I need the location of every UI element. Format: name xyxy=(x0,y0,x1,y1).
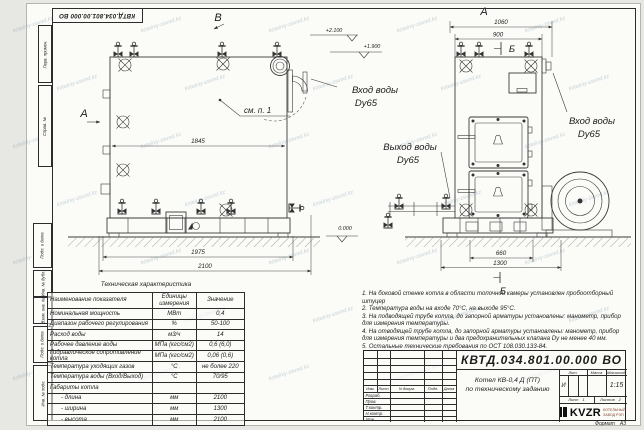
top-stamp: КВТД.034.801.00.000 ВО xyxy=(52,8,143,23)
note-5: 5. Остальные технические требования по О… xyxy=(362,343,630,351)
table-row: Диапазон рабочего регулирования%50-100 xyxy=(48,319,244,330)
lit-value: И xyxy=(559,375,568,396)
mass-header: Масса xyxy=(587,369,606,375)
logo-text: KVZR xyxy=(570,407,601,419)
col-data: Дата xyxy=(442,385,456,392)
table-row: Температура воды (Вход/Выход)°С70/95 xyxy=(48,372,244,383)
table-row: - длинамм2100 xyxy=(48,393,244,404)
sheets-cell: Листов2 xyxy=(594,396,627,403)
table-row: Гидравлическое сопротивление котлаМПа (к… xyxy=(48,350,244,361)
table-row: Номинальная мощностьМВт0,4 xyxy=(48,308,244,319)
frame-column-sprav: Справ. № xyxy=(38,85,52,167)
logo-bars-icon xyxy=(560,404,567,422)
table-title: Техническая характеристика xyxy=(47,281,245,292)
frame-column-podp-data-1: Подп. и дата xyxy=(33,223,52,268)
logo-caption: КОТЕЛЬНЫЙ ЗАВОД РЭП xyxy=(603,408,626,416)
note-3: 3. На подводящей трубе котла, до запорно… xyxy=(362,313,630,328)
title-block: КВТД.034.801.00.000 ВО Изм. Лист N докум… xyxy=(363,350,626,421)
sheet-cell: Лист1 xyxy=(559,396,594,403)
sign-utv: Утв. xyxy=(364,416,390,422)
top-stamp-text: КВТД.034.801.00.000 ВО xyxy=(59,12,135,19)
table-header-unit: Единицы измерения xyxy=(153,293,197,308)
table-row: Расход водым3/ч14 xyxy=(48,329,244,340)
col-list: Лист xyxy=(377,385,390,392)
col-podp: Подп. xyxy=(424,385,442,392)
kvzr-logo: KVZR КОТЕЛЬНЫЙ ЗАВОД РЭП xyxy=(559,403,627,422)
doc-number: КВТД.034.801.00.000 ВО xyxy=(456,351,627,369)
frame-column-perv-primen: Перв. примен. xyxy=(38,25,52,83)
item-name-line1: Котел КВ-0,4 Д (ПТ) xyxy=(475,376,540,385)
table-row: Габариты котла xyxy=(48,382,244,393)
scale-value: 1:15 xyxy=(606,375,627,396)
col-ndokum: N докум. xyxy=(390,385,424,392)
drawing-sheet: kotelniy-zavod.kzkotelniy-zavod.kzkoteln… xyxy=(0,0,644,430)
table-header-value: Значение xyxy=(197,293,245,308)
table-header-name: Наименование показателя xyxy=(48,293,153,308)
table-row: Рабочее давление водыМПа (кгс/см2)0,6 (6… xyxy=(48,340,244,351)
col-izm: Изм. xyxy=(364,385,377,392)
note-1: 1. На боковой стенке котла в области топ… xyxy=(362,290,630,305)
table-row: Температура уходящих газов°Сне более 220 xyxy=(48,361,244,372)
table-row: - ширинамм1300 xyxy=(48,403,244,414)
table-header-row: Наименование показателя Единицы измерени… xyxy=(48,293,244,308)
table-row: - высотамм2100 xyxy=(48,414,244,425)
note-4: 4. На отводящей трубе котла, до запорной… xyxy=(362,328,630,343)
technical-notes: 1. На боковой стенке котла в области топ… xyxy=(362,290,630,350)
format-label: ФорматА3 xyxy=(538,421,626,427)
note-2: 2. Температура воды на входе 70°С, на вы… xyxy=(362,305,630,313)
tech-characteristics-table: Техническая характеристика Наименование … xyxy=(47,281,245,426)
item-name: Котел КВ-0,4 Д (ПТ) по техническому зада… xyxy=(456,369,559,422)
item-name-line2: по техническому заданию xyxy=(466,385,550,394)
